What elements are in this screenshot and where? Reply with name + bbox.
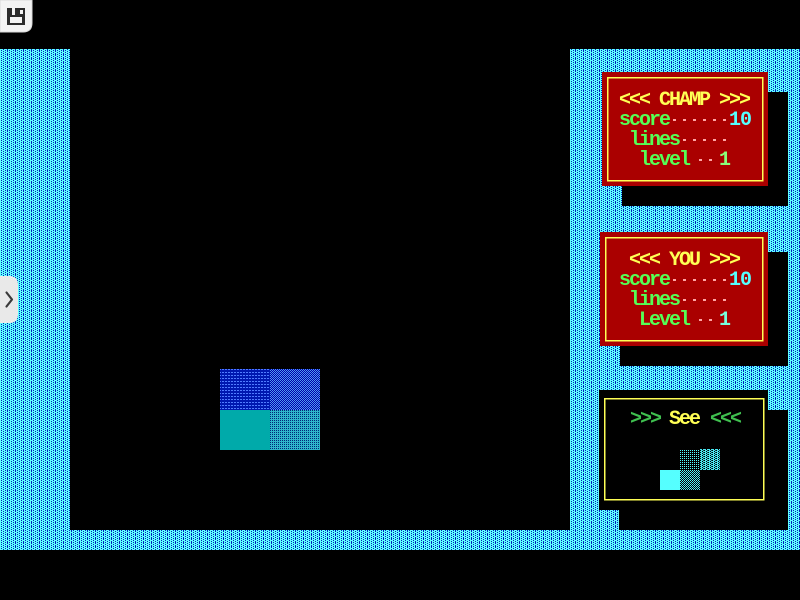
svg-text:10: 10 [729, 269, 751, 292]
svg-text:>>>: >>> [630, 408, 662, 431]
svg-text:See: See [669, 408, 701, 431]
svg-text:10: 10 [729, 109, 751, 132]
svg-text:Level: Level [639, 309, 691, 332]
svg-text:level: level [639, 149, 691, 172]
svg-text:<<<: <<< [710, 408, 742, 431]
